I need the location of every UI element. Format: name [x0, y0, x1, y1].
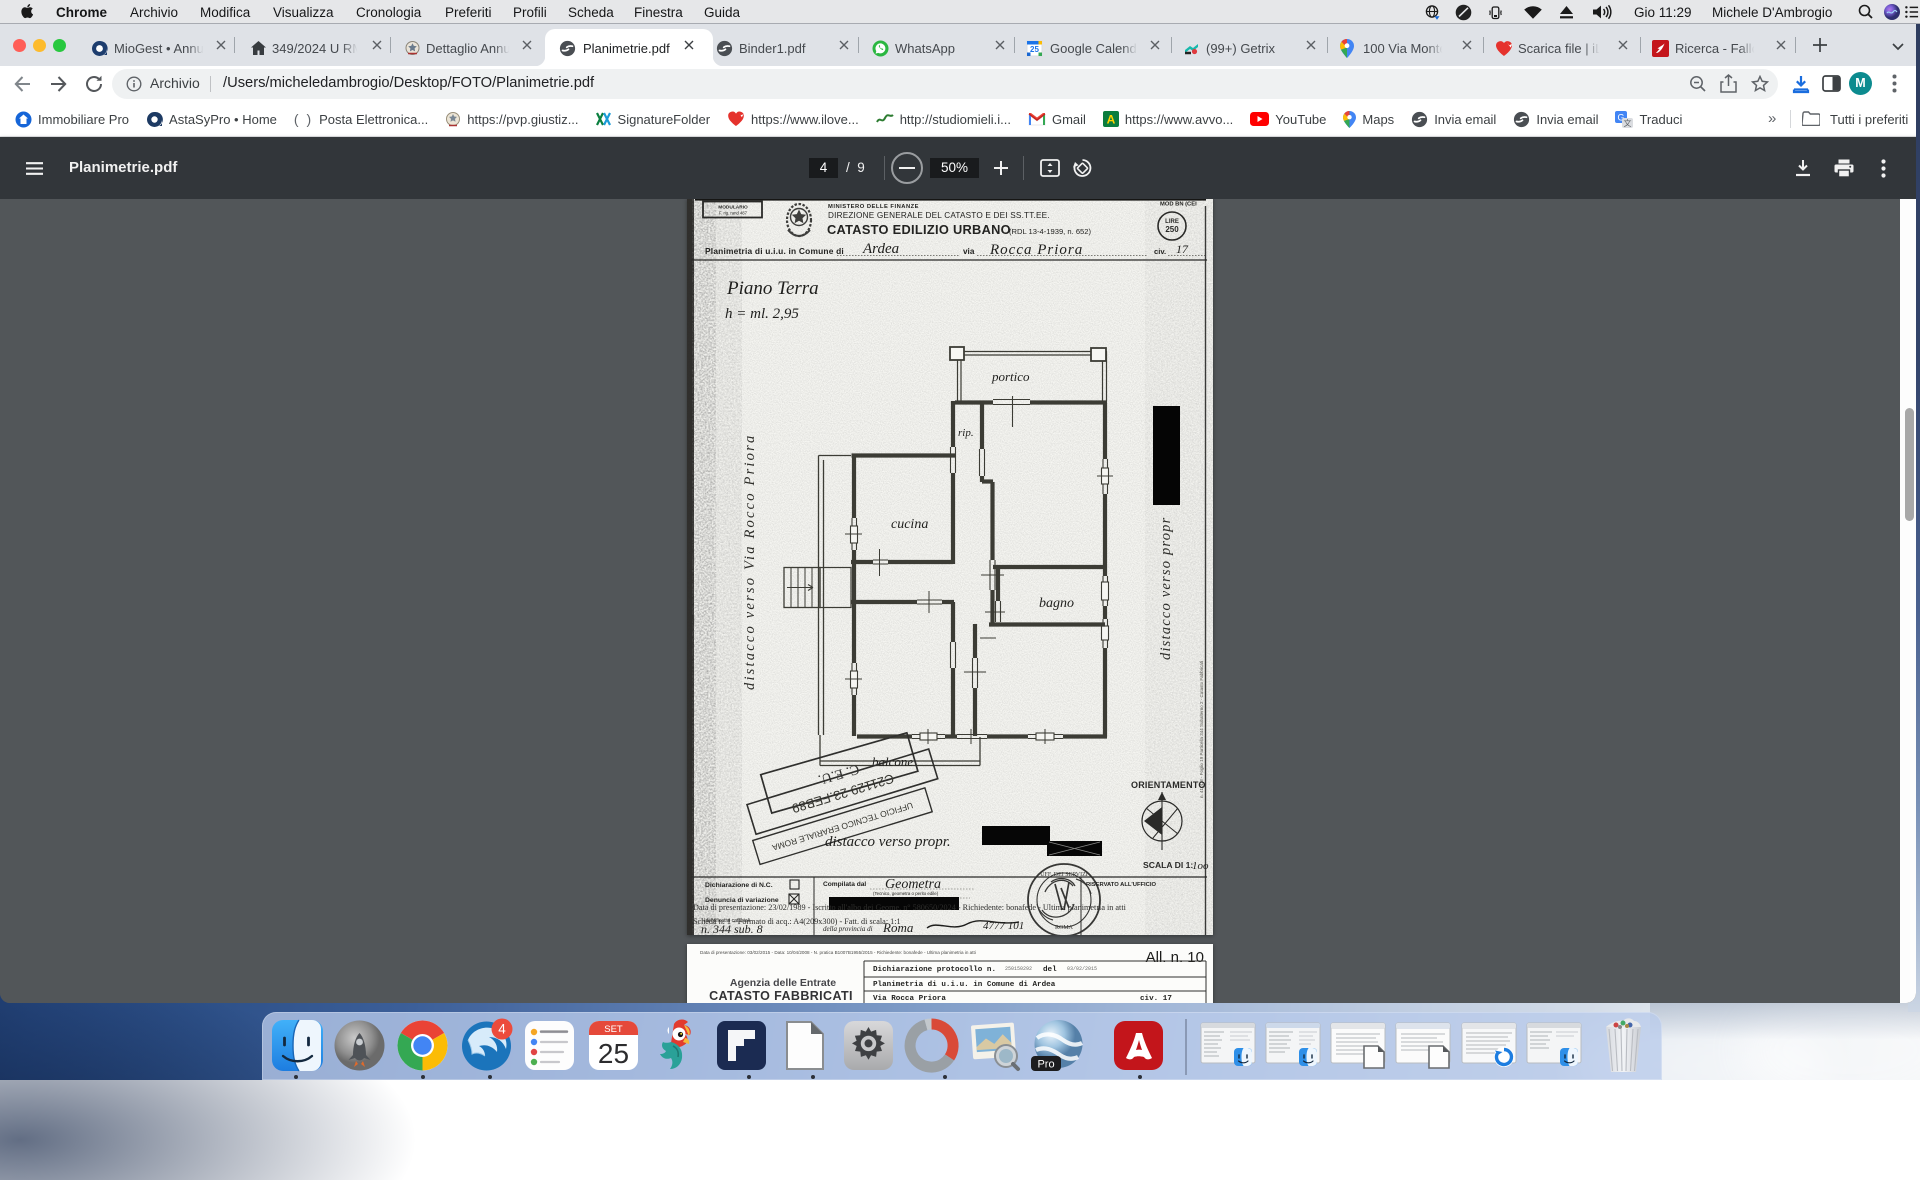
svg-text:ORIENTAMENTO: ORIENTAMENTO [1131, 780, 1206, 790]
svg-text:UFF. DEI SERVIZI: UFF. DEI SERVIZI [1040, 872, 1088, 878]
svg-text:17: 17 [1176, 242, 1189, 256]
svg-text:distacco verso propr: distacco verso propr [1158, 517, 1174, 660]
svg-text:250: 250 [1165, 225, 1179, 234]
svg-text:SET: SET [604, 1024, 623, 1035]
svg-text:CATASTO FABBRICATI: CATASTO FABBRICATI [709, 989, 853, 1003]
svg-text:F. rig. rand 487: F. rig. rand 487 [719, 211, 748, 216]
svg-text:della provincia di: della provincia di [823, 925, 873, 933]
svg-text:MINISTERO DELLE FINANZE: MINISTERO DELLE FINANZE [828, 204, 919, 210]
svg-text:(RDL 13-4-1939, n. 652): (RDL 13-4-1939, n. 652) [1009, 227, 1092, 236]
svg-text:via: via [963, 247, 975, 256]
svg-text:portico: portico [991, 369, 1030, 384]
svg-text:Geometra: Geometra [885, 877, 941, 892]
svg-text:cucina: cucina [891, 517, 928, 532]
svg-text:civ. 17: civ. 17 [1140, 995, 1172, 1003]
svg-text:Dichiarazione protocollo n.: Dichiarazione protocollo n. [873, 966, 996, 974]
svg-text:rip.: rip. [958, 427, 974, 439]
svg-text:1oo: 1oo [1192, 860, 1209, 872]
svg-text:Planimetria di u.i.u. in Comun: Planimetria di u.i.u. in Comune di [705, 246, 844, 256]
svg-text:Data di presentazione: 03/02/2: Data di presentazione: 03/02/2015 - Data… [700, 950, 976, 955]
svg-text:DIREZIONE GENERALE DEL CATASTO: DIREZIONE GENERALE DEL CATASTO E DEI SS.… [828, 211, 1050, 220]
svg-text:25: 25 [598, 1038, 629, 1069]
svg-text:Agenzia delle Entrate: Agenzia delle Entrate [730, 977, 836, 989]
svg-text:25: 25 [1030, 45, 1039, 54]
svg-text:文: 文 [1624, 118, 1632, 128]
svg-text:Roma: Roma [882, 920, 914, 935]
svg-text:Via Rocca Priora: Via Rocca Priora [873, 995, 946, 1003]
svg-text:A: A [1107, 113, 1116, 127]
svg-text:Rocca Priora: Rocca Priora [989, 242, 1083, 258]
svg-text:Piano Terra: Piano Terra [726, 278, 819, 299]
svg-text:4: 4 [498, 1022, 506, 1037]
svg-text:n. 344 sub. 8: n. 344 sub. 8 [701, 922, 763, 935]
svg-text:All. n. 10: All. n. 10 [1146, 949, 1204, 966]
svg-text:250150292: 250150292 [1005, 966, 1032, 972]
svg-text:MOD BN (CEI: MOD BN (CEI [1160, 202, 1197, 208]
svg-text:SCALA DI 1:: SCALA DI 1: [1143, 860, 1193, 870]
svg-text:Ardea: Ardea [862, 241, 899, 257]
svg-text:Pro: Pro [1037, 1059, 1054, 1071]
svg-text:03/02/2015: 03/02/2015 [1067, 966, 1097, 972]
svg-text:CATASTO EDILIZIO URBANO: CATASTO EDILIZIO URBANO [827, 222, 1011, 237]
svg-text:del: del [1043, 966, 1057, 974]
svg-text:ROMA: ROMA [1055, 925, 1074, 931]
svg-text:distacco verso Via Rocco Prior: distacco verso Via Rocco Priora [742, 434, 758, 690]
svg-text:distacco verso propr.: distacco verso propr. [825, 834, 951, 850]
svg-text:bagno: bagno [1039, 596, 1074, 611]
svg-text:Data di presentazione: 23/02/1: Data di presentazione: 23/02/1989 - Iscr… [693, 903, 1127, 912]
svg-text:Planimetria di u.i.u. in Comun: Planimetria di u.i.u. in Comune di Ardea [873, 981, 1056, 989]
svg-text:civ.: civ. [1154, 247, 1166, 256]
svg-text:Compilata dal: Compilata dal [823, 881, 866, 888]
svg-text:h = ml. 2,95: h = ml. 2,95 [725, 306, 799, 322]
svg-text:Dichiarazione di N.C.: Dichiarazione di N.C. [705, 882, 773, 889]
svg-text:n. 4101/8 - Foglio 19 Particel: n. 4101/8 - Foglio 19 Particella 344 Sub… [1199, 661, 1204, 798]
